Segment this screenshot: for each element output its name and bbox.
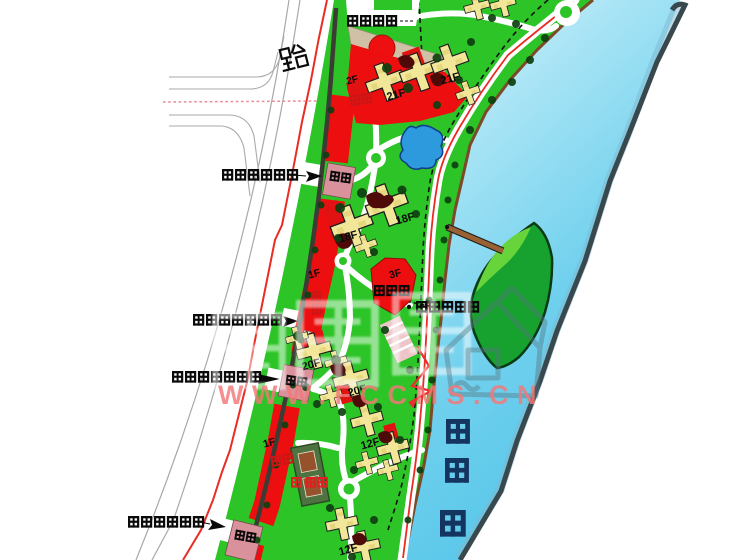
- svg-text:WWW.FCCMS.CN: WWW.FCCMS.CN: [218, 380, 545, 410]
